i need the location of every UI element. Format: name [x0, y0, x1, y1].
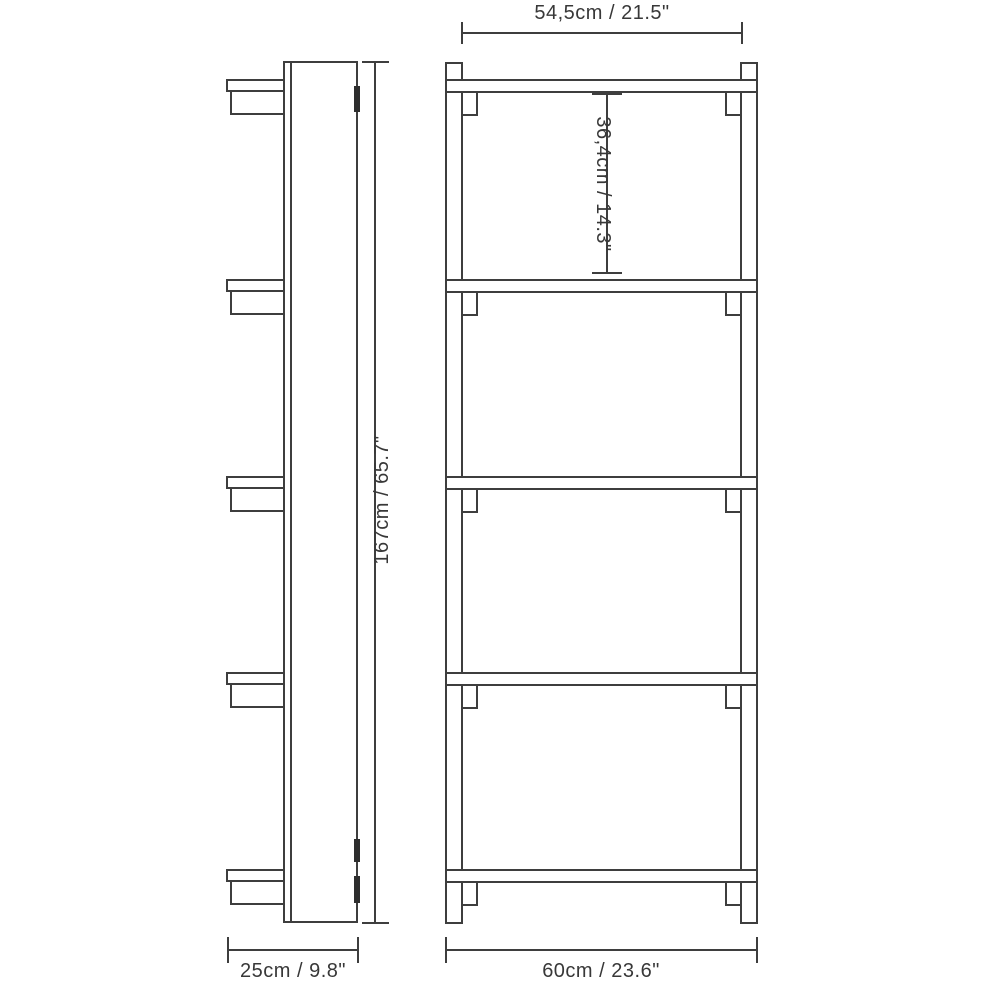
side-shelf-top — [227, 80, 284, 91]
dimension-label-top-width: 54,5cm / 21.5" — [534, 2, 669, 24]
wall-mount-mark — [354, 839, 360, 862]
dimension-top-width: 54,5cm / 21.5" — [462, 2, 742, 44]
side-shelf-bracket — [231, 91, 284, 114]
wall-mount-mark — [354, 86, 360, 112]
side-upright-column — [284, 62, 357, 922]
front-shelf-board — [446, 870, 757, 882]
side-shelf-top — [227, 870, 284, 881]
side-shelf-bracket — [231, 684, 284, 707]
front-shelf-bracket — [726, 489, 741, 512]
front-shelf-bracket — [726, 685, 741, 708]
front-shelf-bracket — [462, 292, 477, 315]
front-shelf-board — [446, 477, 757, 489]
front-shelf-bracket — [726, 92, 741, 115]
side-view — [227, 62, 360, 922]
front-shelf-board — [446, 80, 757, 92]
side-shelf-bracket — [231, 291, 284, 314]
front-shelf-board — [446, 673, 757, 685]
side-shelf-top — [227, 477, 284, 488]
front-right-post — [741, 63, 757, 923]
front-left-post — [446, 63, 462, 923]
front-shelf-bracket — [462, 882, 477, 905]
dimension-bay-height: 36,4cm / 14.3" — [592, 94, 622, 273]
side-shelf — [227, 80, 284, 114]
dimension-total-width: 60cm / 23.6" — [446, 937, 757, 982]
side-shelf — [227, 673, 284, 707]
side-shelf — [227, 870, 284, 904]
dimension-total-height: 167cm / 65.7" — [362, 62, 393, 923]
front-shelf-bracket — [726, 292, 741, 315]
dimension-label-bay-height: 36,4cm / 14.3" — [592, 116, 614, 251]
front-shelf-bracket — [462, 489, 477, 512]
dimension-drawing-page: 54,5cm / 21.5" 36,4cm / 14.3" 167cm / 65… — [0, 0, 984, 984]
side-shelf-bracket — [231, 881, 284, 904]
side-shelf-top — [227, 673, 284, 684]
wall-mount-mark — [354, 876, 360, 903]
side-shelf — [227, 280, 284, 314]
front-shelf-bracket — [462, 92, 477, 115]
dimension-depth: 25cm / 9.8" — [228, 937, 358, 982]
dimension-label-total-height: 167cm / 65.7" — [371, 435, 393, 564]
front-shelf-bracket — [726, 882, 741, 905]
side-shelf-bracket — [231, 488, 284, 511]
side-shelf-top — [227, 280, 284, 291]
dimension-label-depth: 25cm / 9.8" — [240, 960, 346, 982]
shelving-unit-dimension-drawing: 54,5cm / 21.5" 36,4cm / 14.3" 167cm / 65… — [0, 0, 984, 984]
front-shelf-bracket — [462, 685, 477, 708]
dimension-label-total-width: 60cm / 23.6" — [542, 960, 660, 982]
side-shelf — [227, 477, 284, 511]
front-shelf-board — [446, 280, 757, 292]
